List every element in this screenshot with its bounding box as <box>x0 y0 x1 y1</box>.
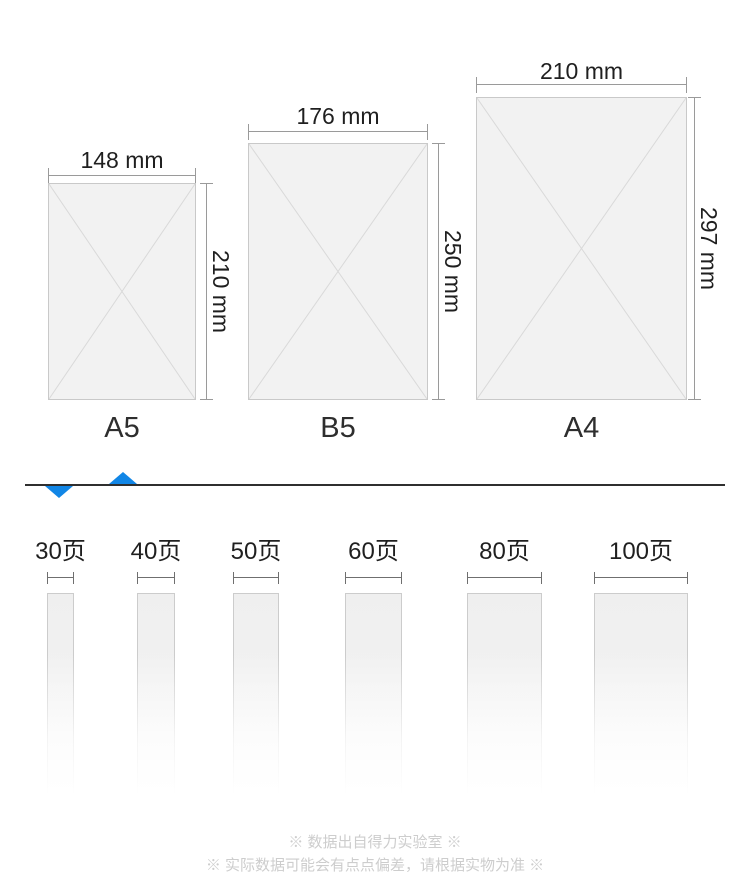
a5-name-label: A5 <box>48 412 196 444</box>
page-count-column-30: 30页 <box>47 538 74 818</box>
page-count-column-50: 50页 <box>233 538 279 818</box>
page-count-label: 100页 <box>609 538 673 566</box>
thickness-dim-line <box>468 577 541 578</box>
page-count-column-60: 60页 <box>345 538 402 818</box>
page-count-column-40: 40页 <box>137 538 175 818</box>
thickness-dim-bracket <box>233 572 279 584</box>
page-stack-bar <box>137 593 175 803</box>
b5-name-label: B5 <box>248 412 428 444</box>
thickness-dim-line <box>234 577 278 578</box>
thickness-dim-line <box>48 577 73 578</box>
a5-cross-icon <box>49 184 195 399</box>
page-stack-bar <box>233 593 279 803</box>
thickness-dim-line <box>138 577 174 578</box>
footnote-line-1: ※ 数据出自得力实验室 ※ <box>0 834 750 851</box>
page-count-label: 60页 <box>348 538 399 566</box>
thickness-dim-bracket <box>467 572 542 584</box>
page-stack-bar <box>47 593 74 803</box>
a5-width-dim-line <box>49 175 195 176</box>
thickness-dim-line <box>595 577 687 578</box>
footnote-line-2: ※ 实际数据可能会有点点偏差，请根据实物为准 ※ <box>0 857 750 874</box>
page-stack-bar <box>345 593 402 803</box>
section-divider-line <box>25 484 725 486</box>
page-count-label: 50页 <box>231 538 282 566</box>
page-count-label: 30页 <box>35 538 86 566</box>
page-count-column-100: 100页 <box>594 538 688 818</box>
a5-width-dim-bracket <box>48 168 196 184</box>
size-guide-diagram: 148 mm 210 mm A5 176 mm 250 mm B5 210 mm <box>0 0 750 896</box>
a4-width-dim-line <box>477 84 686 85</box>
thickness-dim-bracket <box>137 572 175 584</box>
thickness-dim-line <box>346 577 401 578</box>
a4-height-dim-label: 297 mm <box>696 97 722 400</box>
a5-height-dim-label: 210 mm <box>208 183 234 400</box>
thickness-dim-bracket <box>345 572 402 584</box>
thickness-dim-bracket <box>594 572 688 584</box>
a5-paper-box <box>48 183 196 400</box>
page-count-label: 40页 <box>131 538 182 566</box>
page-stack-bar <box>594 593 688 803</box>
b5-width-dim-line <box>249 131 427 132</box>
b5-cross-icon <box>249 144 427 399</box>
thickness-dim-bracket <box>47 572 74 584</box>
a4-paper-box <box>476 97 687 400</box>
triangle-down-icon <box>45 486 73 498</box>
b5-width-dim-bracket <box>248 124 428 140</box>
b5-height-dim-label: 250 mm <box>440 143 466 400</box>
a4-width-dim-bracket <box>476 77 687 93</box>
b5-paper-box <box>248 143 428 400</box>
a4-name-label: A4 <box>476 412 687 444</box>
page-count-label: 80页 <box>479 538 530 566</box>
page-count-column-80: 80页 <box>467 538 542 818</box>
a4-cross-icon <box>477 98 686 399</box>
page-stack-bar <box>467 593 542 803</box>
triangle-up-icon <box>109 472 137 484</box>
